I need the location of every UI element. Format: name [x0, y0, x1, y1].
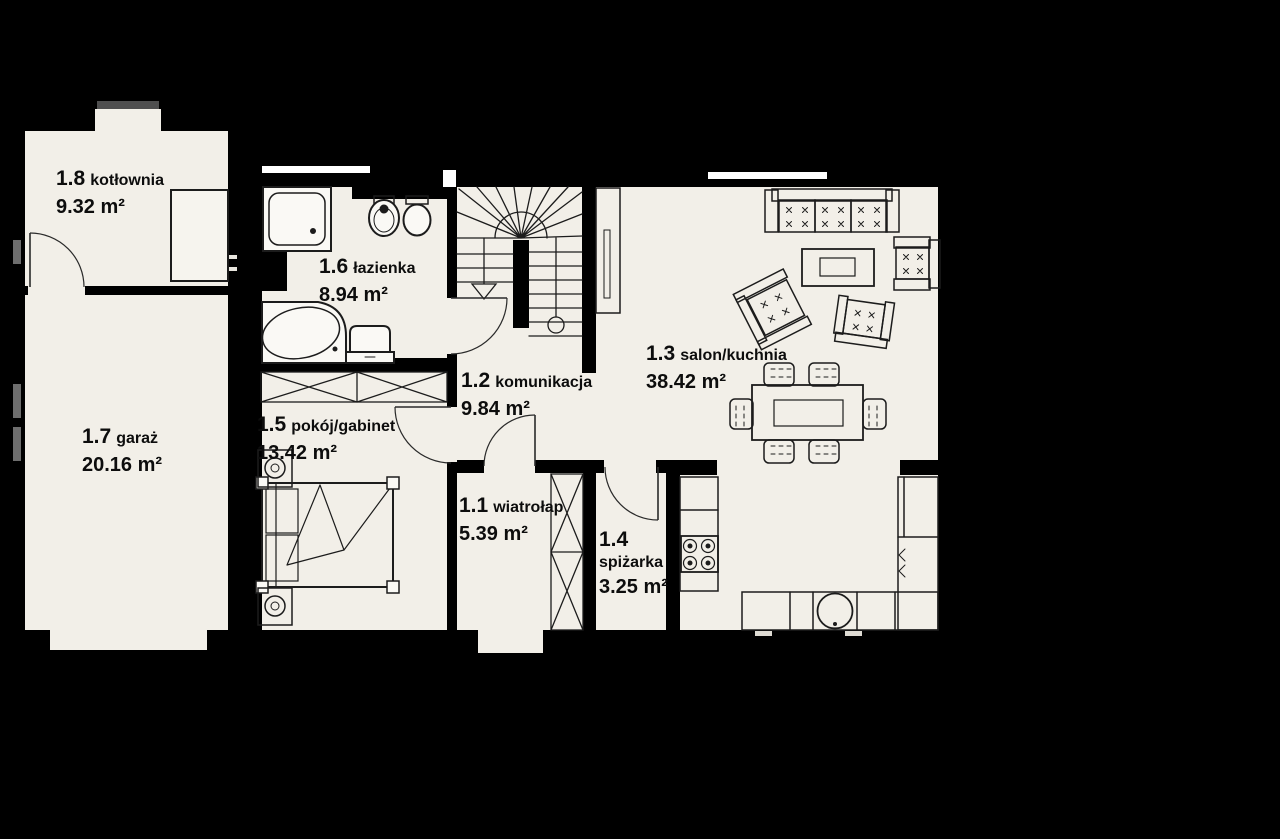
room-label-komunikacja: 1.2komunikacja 9.84 m²	[461, 367, 592, 424]
room-name: wiatrołap	[493, 499, 563, 516]
room-name: salon/kuchnia	[680, 347, 787, 364]
room-number: 1.5	[257, 413, 286, 436]
room-area: 9.84 m²	[461, 396, 592, 424]
washbasin	[369, 196, 399, 236]
room-number: 1.4	[599, 528, 668, 552]
boiler	[171, 190, 228, 281]
boiler-pipe-mark	[228, 267, 237, 271]
room-number: 1.3	[646, 342, 675, 365]
room-number: 1.1	[459, 494, 488, 517]
stairwell-top-gap	[443, 170, 456, 187]
kotlownia-door-gap	[28, 286, 85, 295]
lazienka-door-gap	[447, 298, 457, 354]
room-area: 20.16 m²	[82, 452, 162, 480]
corner-bathtub	[258, 300, 346, 365]
room-name: pokój/gabinet	[291, 418, 395, 435]
room-label-spizarka: 1.4 spiżarka 3.25 m²	[599, 528, 668, 599]
pokoj-door-gap	[447, 407, 457, 462]
spizarka-door-gap	[604, 460, 656, 473]
bathroom-counter-bar	[352, 187, 447, 199]
room-name: kotłownia	[90, 172, 164, 189]
room-number: 1.8	[56, 167, 85, 190]
room-area: 38.42 m²	[646, 369, 787, 397]
floor-plan-canvas: 1.1wiatrołap 5.39 m² 1.2komunikacja 9.84…	[0, 0, 1280, 839]
room-area: 13.42 m²	[257, 440, 395, 468]
kotlownia-chimney-stub	[95, 109, 161, 135]
kitchen-wall-notch	[755, 631, 772, 636]
boiler-pipe-mark	[228, 255, 237, 259]
room-number: 1.7	[82, 425, 111, 448]
entrance-recess	[478, 630, 543, 653]
floor-plan	[0, 0, 1280, 839]
garage-side-window	[13, 384, 21, 418]
room-area: 8.94 m²	[319, 282, 415, 310]
chimney-cap	[97, 101, 159, 109]
bidet	[346, 326, 394, 363]
room-number: 1.2	[461, 369, 490, 392]
stairs-newel-wall	[513, 240, 529, 328]
room-label-salon-kuchnia: 1.3salon/kuchnia 38.42 m²	[646, 340, 787, 397]
garage-door-recess	[50, 630, 207, 650]
room-name: spiżarka	[599, 554, 668, 572]
room-label-kotlownia: 1.8kotłownia 9.32 m²	[56, 165, 164, 222]
room-name: komunikacja	[495, 374, 592, 391]
kitchen-connector-floor	[717, 460, 900, 476]
room-label-lazienka: 1.6łazienka 8.94 m²	[319, 253, 415, 310]
lazienka-window	[262, 166, 370, 173]
wiatrolap-door-gap	[484, 460, 535, 473]
room-label-pokoj-gabinet: 1.5pokój/gabinet 13.42 m²	[257, 411, 395, 468]
kitchen-wall-notch	[845, 631, 862, 636]
room-area: 3.25 m²	[599, 576, 668, 599]
room-label-garaz: 1.7garaż 20.16 m²	[82, 423, 162, 480]
garage-side-window	[13, 427, 21, 461]
chimney-block	[252, 248, 287, 291]
kotlownia-side-window	[13, 240, 21, 264]
shower	[263, 187, 331, 251]
room-area: 5.39 m²	[459, 521, 563, 549]
room-area: 9.32 m²	[56, 194, 164, 222]
room-name: garaż	[116, 430, 158, 447]
room-label-wiatrolap: 1.1wiatrołap 5.39 m²	[459, 492, 563, 549]
room-name: łazienka	[353, 260, 415, 277]
salon-window	[708, 172, 827, 179]
room-number: 1.6	[319, 255, 348, 278]
